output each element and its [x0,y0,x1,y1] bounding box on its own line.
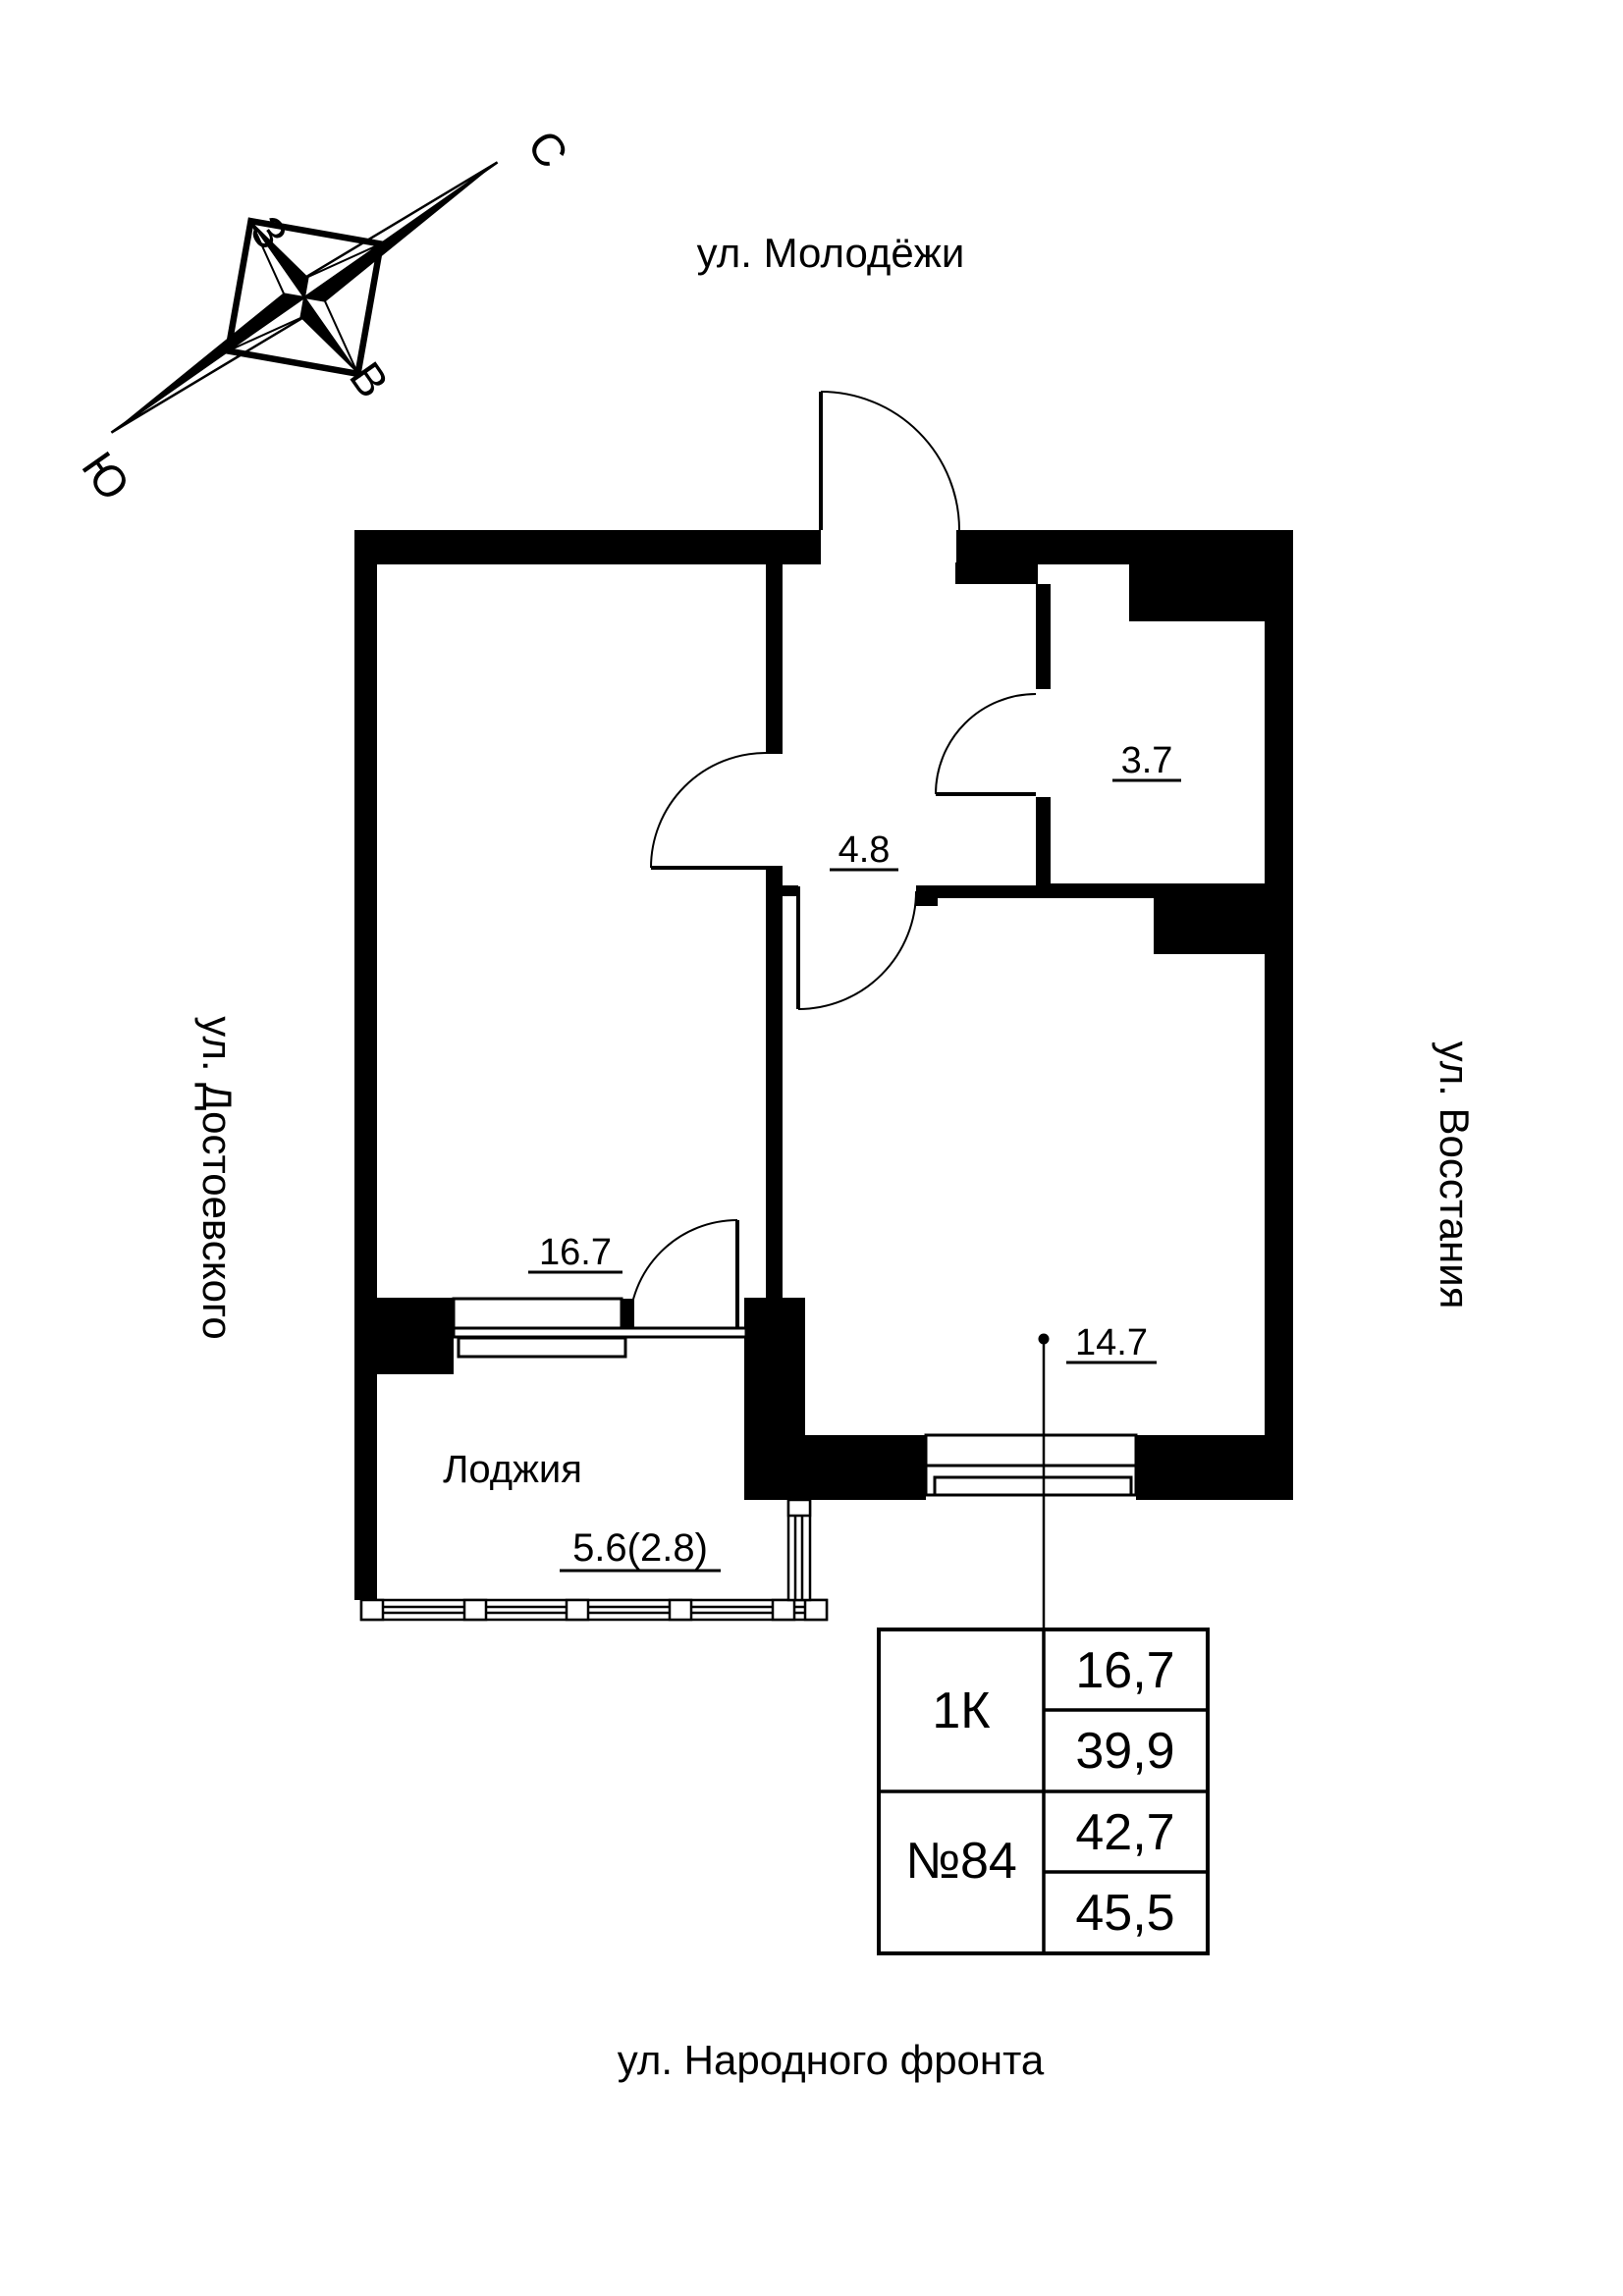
area-without-loggia-cell: 39,9 [1075,1723,1174,1780]
loggia-name-label: Лоджия [443,1448,582,1491]
wall-bathroom-left-upper [1036,584,1051,689]
railing-post [361,1600,383,1620]
floor-plan-page: С З В Ю ул. Молодёжи ул. Достоевского ул… [0,0,1623,2296]
loggia-door-arc [629,1220,737,1328]
living-area-label: 14.7 [1075,1322,1148,1363]
hallway-area-label: 4.8 [839,829,891,871]
railing-corner-post [805,1600,827,1620]
entrance-door-arc [821,392,959,530]
railing-post [670,1600,691,1620]
flat-type-cell: 1К [932,1682,990,1739]
wall-partition-upper [766,564,783,754]
railing-post [464,1600,486,1620]
street-label-bottom: ул. Народного фронта [618,2037,1045,2083]
wall-partition-lower [766,866,783,1298]
wall-bathroom-corner-block [1154,898,1265,954]
railing-bottom-band [361,1600,827,1620]
window-loggia-sill [459,1338,625,1357]
pier-loggia-right [744,1298,805,1500]
wall-bathroom-bottom [1036,883,1265,898]
wall-entrance-block [955,562,1038,584]
street-label-right: ул. Восстания [1432,1041,1478,1309]
window-living-sill [935,1477,1131,1495]
wall-bathroom-left-lower [1036,797,1051,888]
compass-label-north: С [517,121,578,177]
bathroom-door-arc [936,694,1036,794]
room-area-label: 16.7 [539,1232,612,1273]
railing-post [567,1600,588,1620]
wall-living-top-tab [916,898,938,906]
living-area-cell: 16,7 [1075,1642,1174,1699]
wall-bottom-left [805,1435,926,1500]
bathroom-area-label: 3.7 [1121,740,1173,781]
area-with-coef-cell: 42,7 [1075,1804,1174,1861]
area-total-cell: 45,5 [1075,1885,1174,1942]
info-table: 1К №84 16,7 39,9 42,7 45,5 [879,1629,1208,1953]
compass-rose: С З В Ю [58,86,578,509]
street-label-top: ул. Молодёжи [697,230,965,276]
wall-bottom-right [1136,1435,1293,1500]
floor-plan-drawing: С З В Ю ул. Молодёжи ул. Достоевского ул… [0,0,1623,2296]
walls [354,530,1293,1600]
wall-top-left [354,530,821,564]
railing-right-post [788,1500,810,1516]
pier-loggia-left [354,1298,454,1374]
living-door-arc [798,891,916,1009]
window-loggia-threshold [454,1328,746,1337]
wall-top-right [956,530,1293,564]
railing-post [773,1600,794,1620]
wall-living-top-stub [783,885,798,896]
street-label-left: ул. Достоевского [194,1016,241,1339]
room-door-arc [651,753,766,868]
wall-living-top [916,885,1051,898]
flat-number-cell: №84 [905,1833,1017,1890]
wall-right-exterior [1265,621,1293,1500]
compass-label-south: Ю [72,443,139,509]
loggia-area-label: 5.6(2.8) [572,1526,708,1570]
window-room-loggia [454,1299,622,1328]
wall-left-exterior [354,564,377,1600]
wall-top-right-block [1129,564,1293,621]
